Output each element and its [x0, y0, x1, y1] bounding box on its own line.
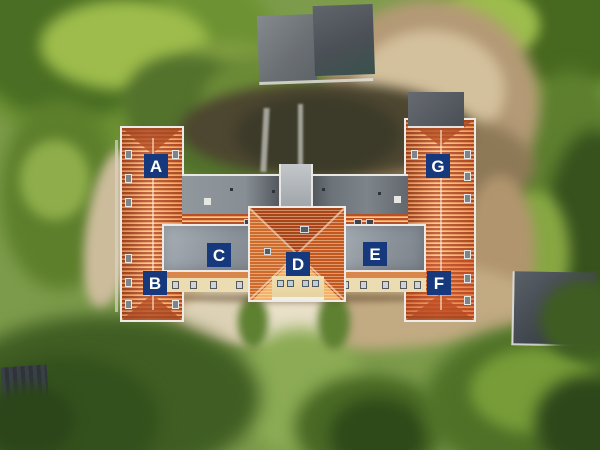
window	[382, 281, 389, 289]
south-gable-facade	[272, 276, 324, 300]
roof-window	[172, 150, 179, 159]
facade-e	[336, 272, 426, 292]
grass-left-bright	[20, 140, 90, 220]
window	[302, 280, 309, 287]
roof-fixture	[272, 190, 275, 193]
window	[360, 281, 367, 289]
unit-letter: B	[149, 275, 161, 292]
unit-badge-e: E	[363, 242, 387, 266]
annex-roof-northeast	[408, 92, 464, 128]
unit-letter: D	[292, 256, 304, 273]
unit-badge-a: A	[144, 154, 168, 178]
roof-fixture	[378, 192, 381, 195]
roof-window	[464, 194, 471, 203]
roof-fixture	[322, 188, 325, 191]
window	[400, 281, 407, 289]
unit-badge-d: D	[286, 252, 310, 276]
unit-badge-g: G	[426, 154, 450, 178]
roof-window	[464, 250, 471, 259]
unit-letter: A	[150, 158, 162, 175]
roof-window	[464, 150, 471, 159]
roof-window	[125, 300, 132, 309]
roof-vent	[204, 198, 211, 205]
window	[210, 281, 217, 289]
window	[172, 281, 179, 289]
unit-badge-c: C	[207, 243, 231, 267]
roof-window	[464, 172, 471, 181]
roof-window	[125, 174, 132, 183]
window	[312, 280, 319, 287]
outbuilding-north-roof-left	[257, 14, 317, 82]
unit-letter: C	[213, 247, 225, 264]
roof-vent	[394, 196, 401, 203]
roof-window	[411, 150, 418, 159]
roof-window	[464, 274, 471, 283]
unit-letter: G	[431, 158, 444, 175]
roof-window	[464, 296, 471, 305]
roof-window	[125, 278, 132, 287]
unit-letter: F	[434, 275, 444, 292]
unit-letter: E	[369, 246, 380, 263]
window	[277, 280, 284, 287]
window	[414, 281, 421, 289]
window	[287, 280, 294, 287]
unit-badge-b: B	[143, 271, 167, 295]
unit-badge-f: F	[427, 271, 451, 295]
roof-fixture	[230, 188, 233, 191]
roof-window	[125, 198, 132, 207]
roof-window	[172, 300, 179, 309]
window	[236, 281, 243, 289]
window	[190, 281, 197, 289]
outbuilding-north-roof-right	[313, 4, 375, 76]
aerial-photo: A B C D E F G	[0, 0, 600, 450]
outbuilding-north	[257, 4, 378, 88]
roof-window	[125, 150, 132, 159]
skylight	[264, 248, 271, 255]
skylight	[300, 226, 309, 233]
roof-window	[125, 254, 132, 263]
west-gutter-line	[115, 140, 118, 312]
bush-left-of-entrance	[238, 296, 268, 348]
concrete-post	[298, 104, 303, 172]
